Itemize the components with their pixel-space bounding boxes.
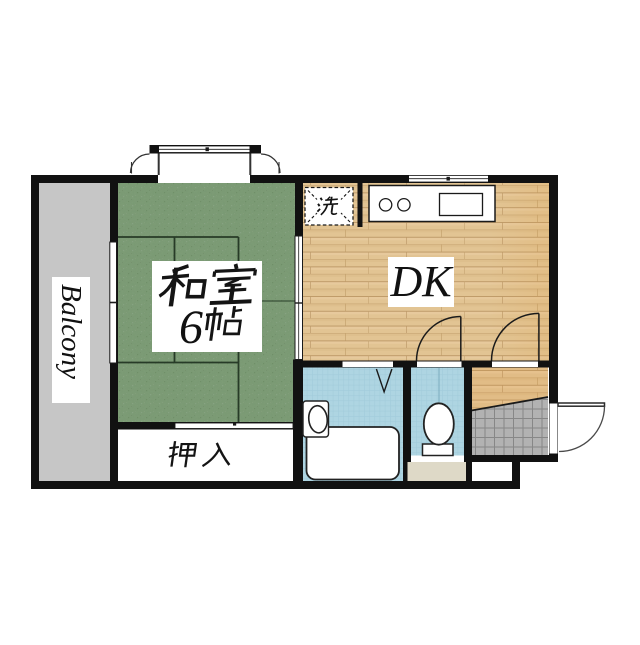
svg-text:6: 6 <box>179 301 203 354</box>
svg-text:DK: DK <box>389 257 454 306</box>
svg-text:Balcony: Balcony <box>55 284 87 379</box>
